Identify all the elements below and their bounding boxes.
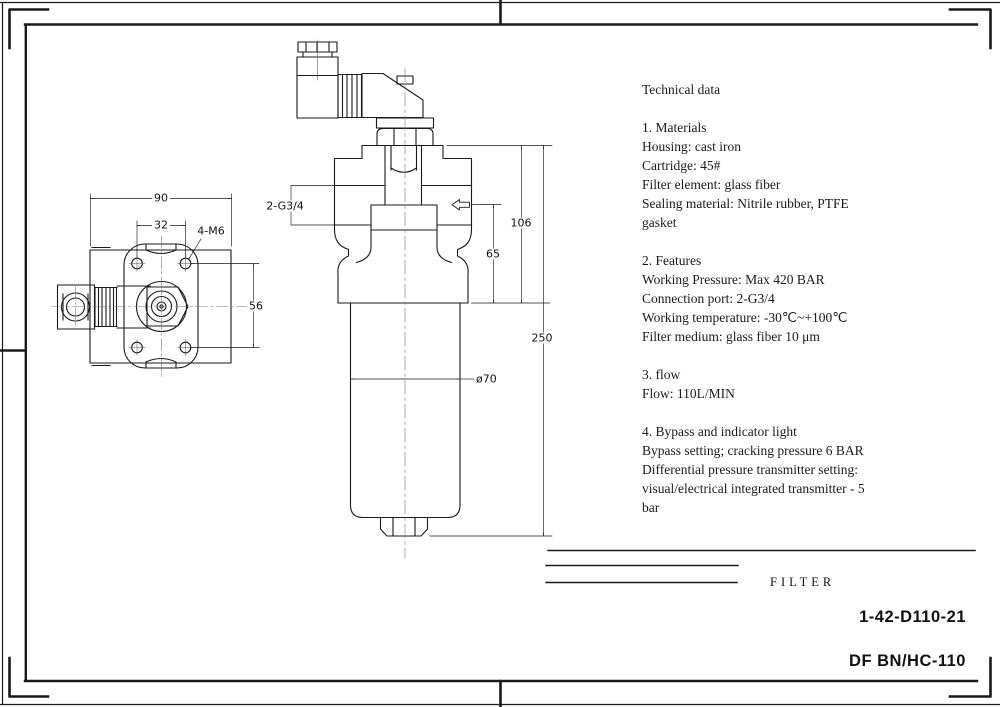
front-view bbox=[297, 40, 472, 558]
tech-line: bar bbox=[642, 498, 865, 517]
filter-head bbox=[335, 146, 472, 304]
dim-label-overall-width: 90 bbox=[152, 193, 170, 204]
drain-plug bbox=[381, 518, 428, 537]
drawing-number: 1-42-D110-21 bbox=[859, 609, 966, 626]
dim-label-hole-spacing: 32 bbox=[152, 220, 170, 231]
technical-data-title: Technical data bbox=[642, 80, 865, 99]
tech-line: Housing: cast iron bbox=[642, 137, 865, 156]
tech-line: 2. Features bbox=[642, 251, 865, 270]
tech-line: gasket bbox=[642, 213, 865, 232]
flow-direction-arrow bbox=[452, 200, 470, 211]
tech-line: 3. flow bbox=[642, 365, 865, 384]
dim-label-thread-callout: 4-M6 bbox=[195, 226, 226, 237]
dim-label-bowl-diameter: ø70 bbox=[474, 374, 499, 385]
transmitter-elbow bbox=[362, 74, 423, 118]
drawing-sheet: 90 32 4-M6 56 2-G3/4 65 106 250 ø70 Tech… bbox=[0, 0, 1000, 707]
tech-line: 1. Materials bbox=[642, 118, 865, 137]
title-block-lines bbox=[546, 551, 975, 583]
technical-data-block: Technical data 1. Materials Housing: cas… bbox=[642, 80, 865, 517]
tech-line: Filter medium: glass fiber 10 μm bbox=[642, 327, 865, 346]
tech-line: visual/electrical integrated transmitter… bbox=[642, 479, 865, 498]
tech-line: Differential pressure transmitter settin… bbox=[642, 460, 865, 479]
indicator-tower bbox=[385, 146, 422, 206]
tech-line: Bypass setting; cracking pressure 6 BAR bbox=[642, 441, 865, 460]
tech-line: Sealing material: Nitrile rubber, PTFE bbox=[642, 194, 865, 213]
left-view bbox=[52, 236, 263, 378]
tech-line: 4. Bypass and indicator light bbox=[642, 422, 865, 441]
tech-line: Working Pressure: Max 420 BAR bbox=[642, 270, 865, 289]
dim-label-head-height: 106 bbox=[509, 218, 534, 229]
model-number: DF BN/HC-110 bbox=[849, 653, 966, 670]
tech-line: Connection port: 2-G3/4 bbox=[642, 289, 865, 308]
dim-label-hole-height: 56 bbox=[247, 301, 265, 312]
side-port-fitting bbox=[58, 285, 118, 329]
tech-line: Flow: 110L/MIN bbox=[642, 384, 865, 403]
tech-line: Cartridge: 45# bbox=[642, 156, 865, 175]
dim-label-port-to-bowl: 65 bbox=[484, 249, 502, 260]
cable-gland-ribs bbox=[338, 75, 362, 118]
dim-label-overall-height: 250 bbox=[530, 333, 555, 344]
dim-label-port-callout: 2-G3/4 bbox=[264, 201, 306, 212]
tech-line: Working temperature: -30℃~+100℃ bbox=[642, 308, 865, 327]
product-name: FILTER bbox=[770, 576, 835, 589]
tech-line: Filter element: glass fiber bbox=[642, 175, 865, 194]
